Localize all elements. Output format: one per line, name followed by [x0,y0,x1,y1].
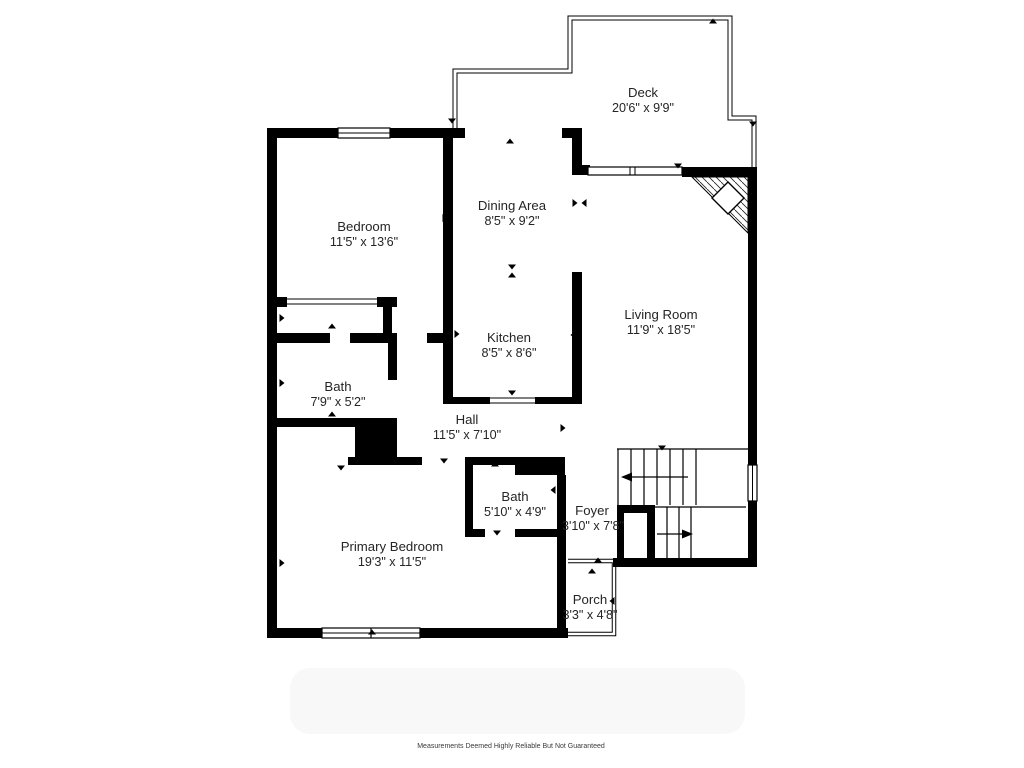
svg-text:5'10" x 4'9": 5'10" x 4'9" [484,505,546,519]
room-label-bath-upper: Bath 7'9" x 5'2" [310,379,365,409]
room-label-bath-lower: Bath 5'10" x 4'9" [484,489,546,519]
svg-text:20'6" x 9'9": 20'6" x 9'9" [612,101,674,115]
sliding-door [588,167,682,175]
stair-arrow-down [657,530,693,539]
room-label-kitchen: Kitchen 8'5" x 8'6" [481,330,536,360]
stair-arrow-up [621,473,688,482]
footer-disclaimer: Measurements Deemed Highly Reliable But … [417,743,605,750]
svg-text:19'3" x 11'5": 19'3" x 11'5" [358,555,426,569]
svg-text:Kitchen: Kitchen [487,330,531,345]
chimney-block [355,418,397,458]
svg-text:8'5" x 8'6": 8'5" x 8'6" [481,346,536,360]
staircase [617,449,748,558]
watermark-area [290,668,745,734]
svg-text:Porch: Porch [573,592,607,607]
svg-text:11'5" x 7'10": 11'5" x 7'10" [433,428,501,442]
svg-text:11'9" x 18'5": 11'9" x 18'5" [627,323,695,337]
svg-text:Hall: Hall [456,412,479,427]
svg-text:Foyer: Foyer [575,503,609,518]
room-label-hall: Hall 11'5" x 7'10" [433,412,501,442]
svg-text:Bath: Bath [324,379,351,394]
svg-text:Bedroom: Bedroom [337,219,391,234]
room-label-deck: Deck 20'6" x 9'9" [612,85,674,115]
bedroom-window [338,128,390,138]
svg-text:Living Room: Living Room [624,307,697,322]
svg-text:7'9" x 5'2": 7'9" x 5'2" [310,395,365,409]
fireplace [692,177,748,233]
svg-text:Deck: Deck [628,85,658,100]
svg-text:Dining Area: Dining Area [478,198,547,213]
closet-opening [287,298,377,305]
foyer-window [748,465,757,501]
svg-text:Primary Bedroom: Primary Bedroom [341,539,444,554]
svg-text:8'5" x 9'2": 8'5" x 9'2" [484,214,539,228]
deck-outline [455,18,754,167]
interior-walls [267,128,655,567]
room-label-dining-area: Dining Area 8'5" x 9'2" [478,198,547,228]
svg-text:11'5" x 13'6": 11'5" x 13'6" [330,235,398,249]
svg-text:3'3" x 4'8": 3'3" x 4'8" [562,608,617,622]
svg-text:3'10" x 7'8": 3'10" x 7'8" [562,519,624,533]
floor-plan-svg: Deck 20'6" x 9'9" Bedroom 11'5" x 13'6" … [0,0,1024,768]
kitchen-opening [490,397,535,404]
room-label-bedroom: Bedroom 11'5" x 13'6" [330,219,398,249]
room-label-foyer: Foyer 3'10" x 7'8" [562,503,624,533]
room-label-porch: Porch 3'3" x 4'8" [562,592,617,622]
room-label-living-room: Living Room 11'9" x 18'5" [624,307,697,337]
room-label-primary-bedroom: Primary Bedroom 19'3" x 11'5" [341,539,444,569]
floor-plan-page: Deck 20'6" x 9'9" Bedroom 11'5" x 13'6" … [0,0,1024,768]
svg-text:Bath: Bath [501,489,528,504]
